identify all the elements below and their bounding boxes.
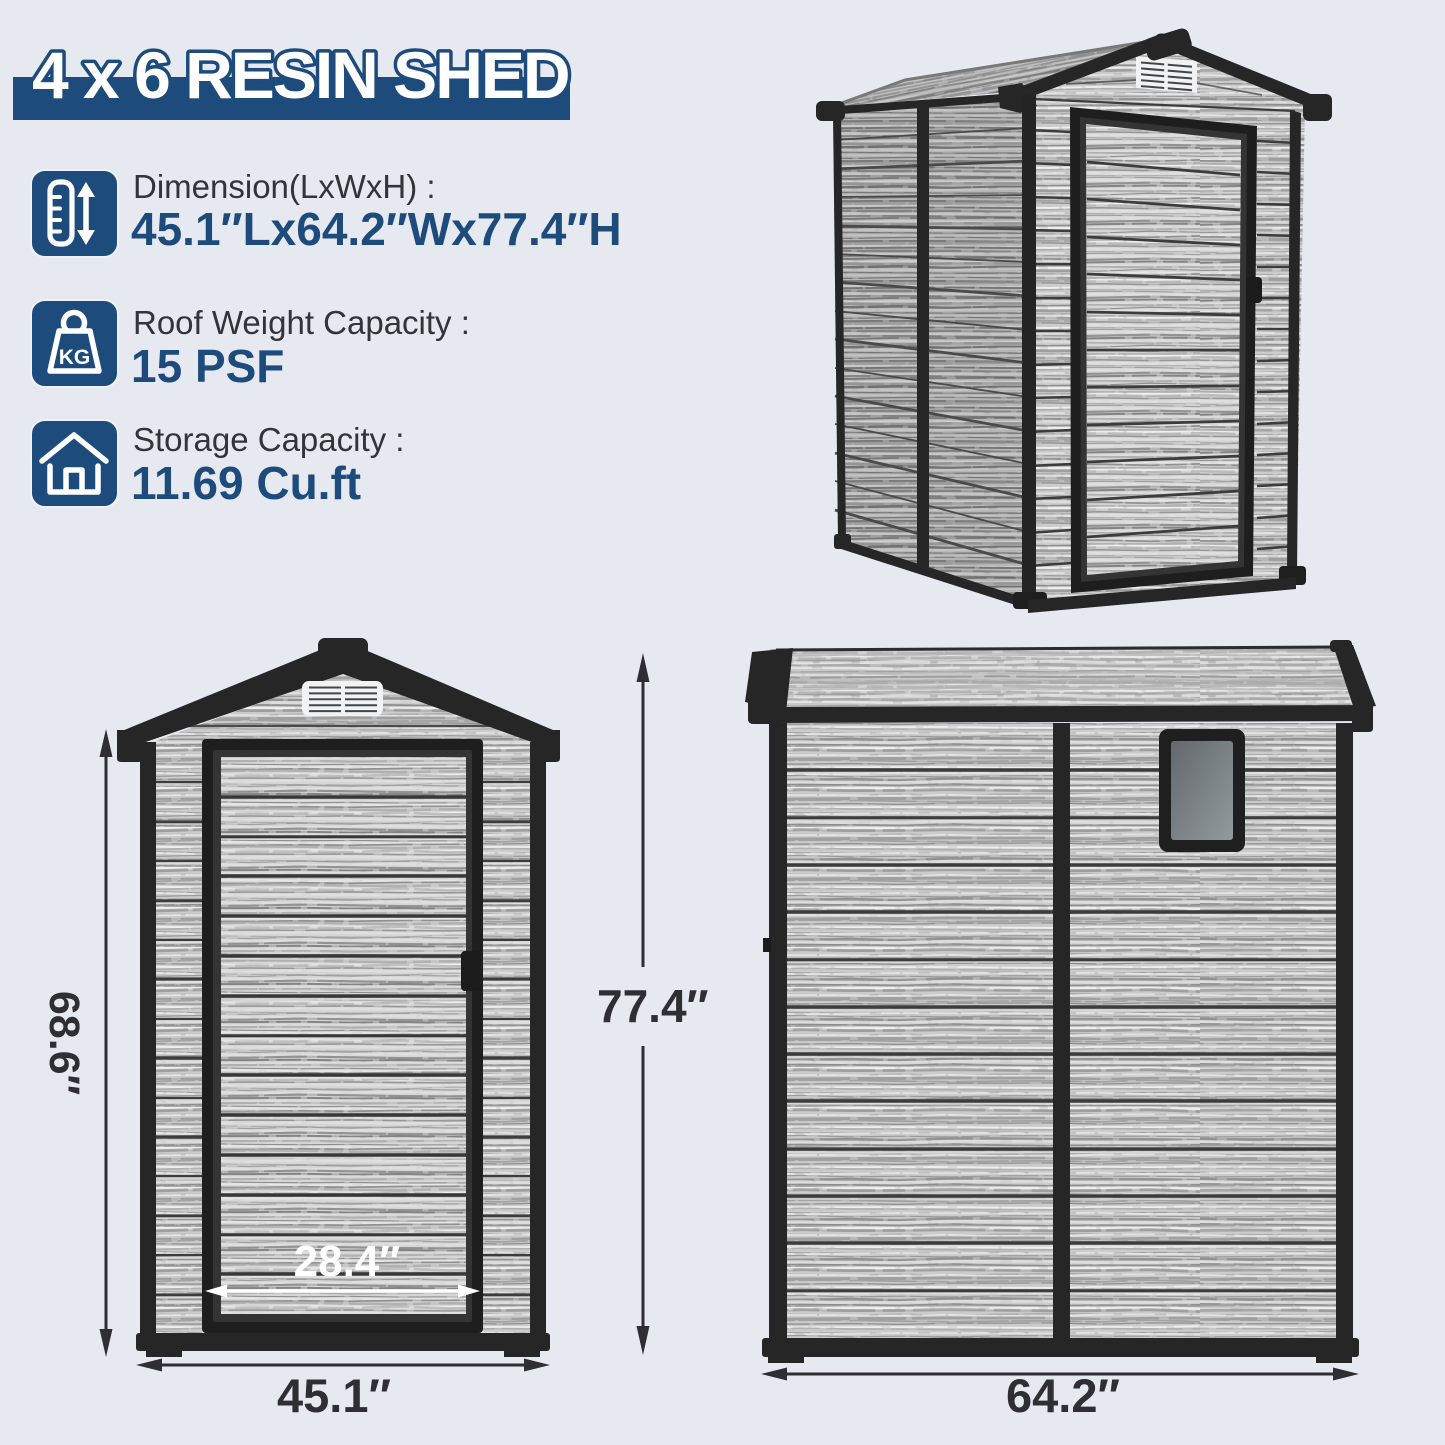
- svg-text:KG: KG: [59, 346, 91, 369]
- svg-text:11.69 Cu.ft: 11.69 Cu.ft: [131, 457, 361, 509]
- svg-text:28.4″: 28.4″: [294, 1237, 401, 1286]
- svg-text:77.4″: 77.4″: [597, 980, 709, 1032]
- svg-text:45.1″Lx64.2″Wx77.4″H: 45.1″Lx64.2″Wx77.4″H: [131, 203, 622, 255]
- svg-text:15 PSF: 15 PSF: [131, 340, 284, 392]
- svg-text:68.6″: 68.6″: [40, 991, 88, 1095]
- svg-text:64.2″: 64.2″: [1006, 1369, 1120, 1422]
- svg-text:Storage Capacity :: Storage Capacity :: [133, 421, 404, 458]
- svg-text:4 x 6 RESIN SHED: 4 x 6 RESIN SHED: [32, 38, 569, 112]
- svg-text:45.1″: 45.1″: [277, 1369, 391, 1422]
- svg-text:Roof Weight Capacity :: Roof Weight Capacity :: [133, 304, 470, 341]
- svg-text:Dimension(LxWxH) :: Dimension(LxWxH) :: [133, 168, 436, 205]
